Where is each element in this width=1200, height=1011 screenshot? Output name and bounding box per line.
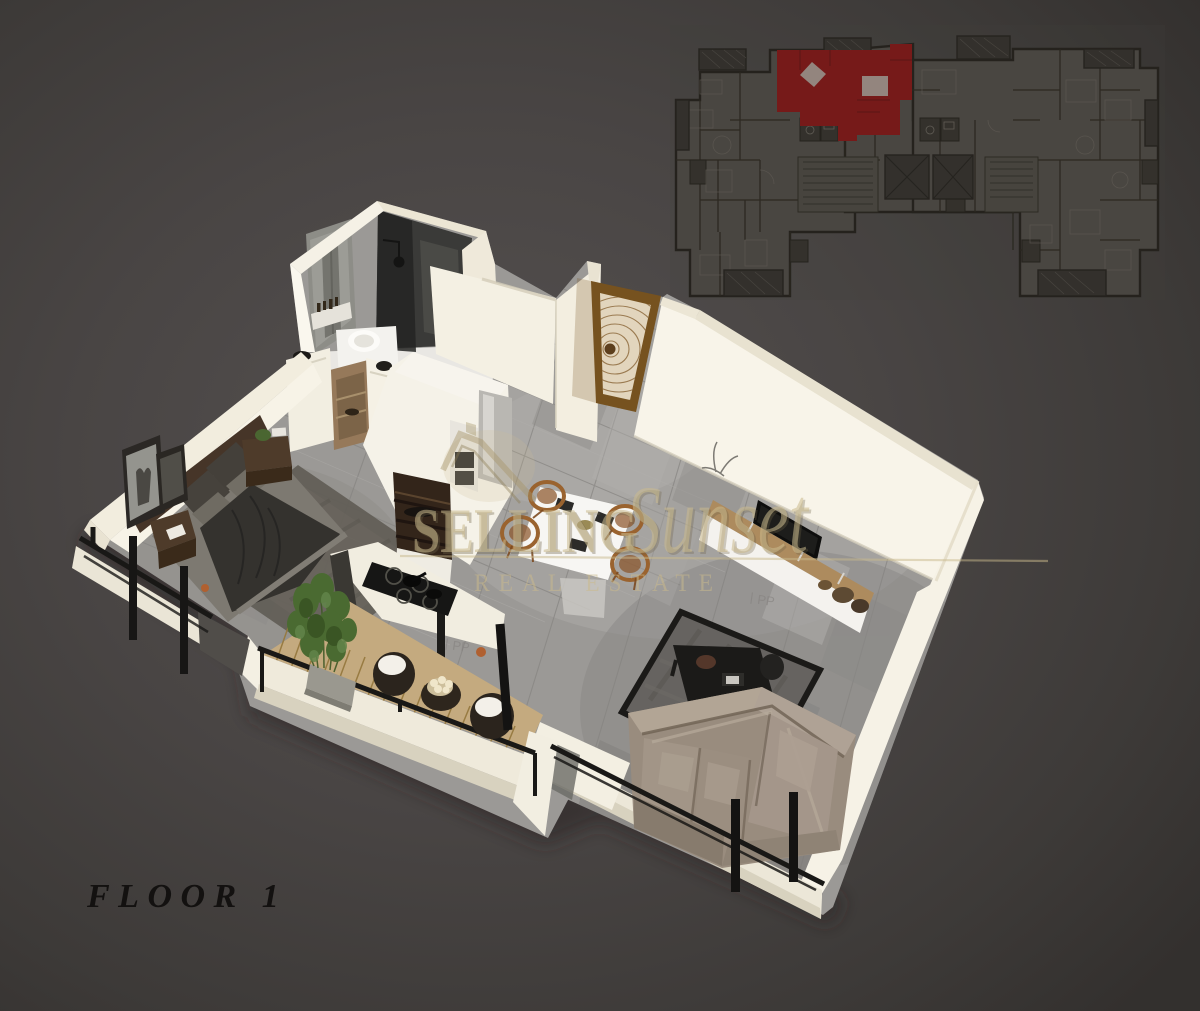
svg-text:REAL ESTATE: REAL ESTATE: [474, 570, 722, 597]
svg-text:FLOOR 1: FLOOR 1: [86, 878, 287, 915]
